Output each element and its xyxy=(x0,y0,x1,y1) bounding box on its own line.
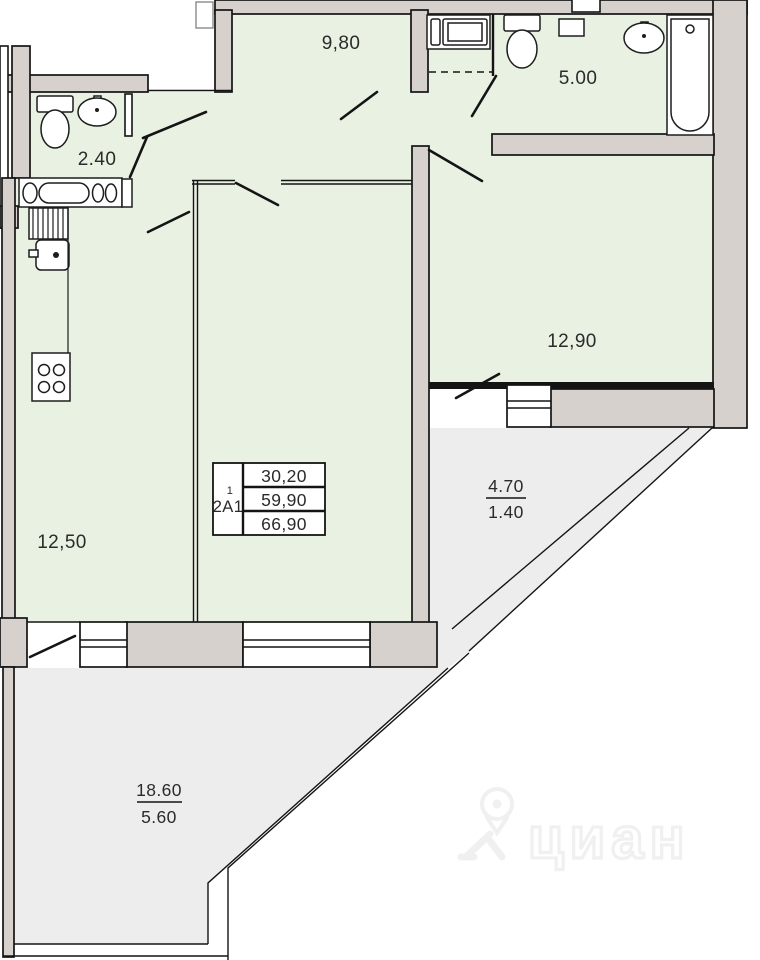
wall-bottom-left-post xyxy=(0,618,27,667)
vent-shaft xyxy=(572,0,600,12)
wall-bath-bottom xyxy=(492,134,714,155)
living-window xyxy=(243,622,370,667)
kitchen-area-label: 12,50 xyxy=(37,532,87,553)
kitchen-counter-end xyxy=(122,179,132,207)
kitchen-window xyxy=(80,622,127,667)
wall-left-upper xyxy=(12,46,30,178)
wall-bottom-pier1 xyxy=(126,622,243,667)
floorplan-canvas: циан xyxy=(0,0,760,960)
wall-right xyxy=(713,0,747,428)
wc-partition xyxy=(125,94,132,136)
stove-icon xyxy=(32,353,70,401)
terrace-floor xyxy=(14,668,448,944)
watermark-pin-dot xyxy=(493,800,502,809)
wc-area-label: 2.40 xyxy=(78,149,117,170)
corridor-cabinet xyxy=(427,15,490,49)
unit-code-label: 2А1 xyxy=(213,498,244,516)
terrace-reduced-label: 5.60 xyxy=(141,807,177,827)
terrace-area-label: 18.60 xyxy=(136,780,182,800)
kitchen-sink-basin-icon xyxy=(39,183,89,203)
wall-bottom-pier2 xyxy=(370,622,437,667)
wall-top xyxy=(215,0,747,14)
wall-hall-post-left xyxy=(215,10,232,92)
balcony-reduced-label: 1.40 xyxy=(488,502,524,522)
area-no-balcony-value: 59,90 xyxy=(261,490,307,510)
bedroom-area-label: 12,90 xyxy=(547,331,597,352)
unit-info-table: 1 2А1 30,20 59,90 66,90 xyxy=(213,463,325,535)
wall-left-lower xyxy=(2,178,15,667)
balcony-floor xyxy=(429,428,712,668)
hallway-floor xyxy=(228,14,412,92)
unit-sup-label: 1 xyxy=(227,485,234,497)
sink-icon xyxy=(36,240,69,270)
wall-hall-post-right xyxy=(411,10,428,92)
terrace-door xyxy=(30,636,75,657)
watermark-text: циан xyxy=(528,806,691,871)
watermark-legs xyxy=(461,834,502,857)
living-area-value: 30,20 xyxy=(261,466,307,486)
wall-center-vertical xyxy=(412,146,429,665)
total-area-value: 66,90 xyxy=(261,514,307,534)
bedroom-balcony-window xyxy=(507,385,551,427)
balcony-area-label: 4.70 xyxy=(488,476,524,496)
terrace-parapet-left xyxy=(3,667,14,957)
vent-box-icon xyxy=(559,19,584,36)
bathtub-tap-icon xyxy=(686,25,694,33)
toilet2-bowl-icon xyxy=(507,30,537,68)
wall-bedroom-bottom-band xyxy=(550,389,714,427)
cian-watermark: циан xyxy=(461,789,691,871)
floorplan: циан xyxy=(0,0,760,960)
toilet2-tank-icon xyxy=(504,15,540,31)
hallway-area-label: 9,80 xyxy=(322,33,361,54)
bathroom-area-label: 5.00 xyxy=(559,68,598,89)
shaft-top-left xyxy=(196,2,213,28)
sink-tap-icon xyxy=(29,250,38,257)
toilet-bowl-icon xyxy=(41,110,69,148)
